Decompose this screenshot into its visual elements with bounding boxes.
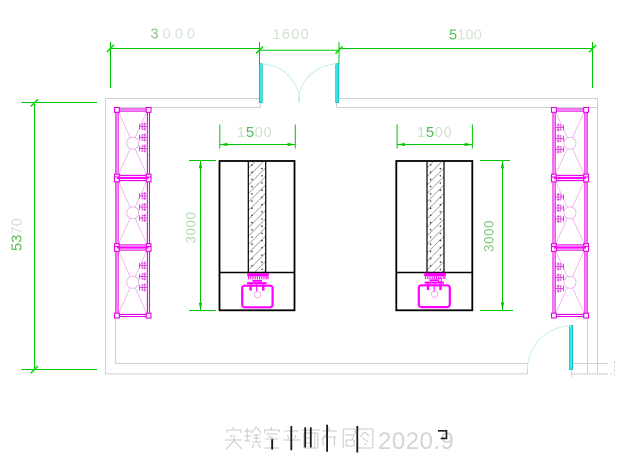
svg-text:15: 15 bbox=[237, 125, 255, 141]
svg-text:15: 15 bbox=[417, 125, 435, 141]
svg-text:1600: 1600 bbox=[273, 27, 310, 43]
svg-text:3: 3 bbox=[151, 27, 159, 43]
svg-text:3000: 3000 bbox=[482, 220, 497, 252]
svg-text:3000: 3000 bbox=[184, 211, 199, 243]
svg-text:5: 5 bbox=[449, 28, 457, 44]
svg-text:2020.9: 2020.9 bbox=[378, 428, 454, 455]
svg-text:53: 53 bbox=[10, 234, 26, 251]
